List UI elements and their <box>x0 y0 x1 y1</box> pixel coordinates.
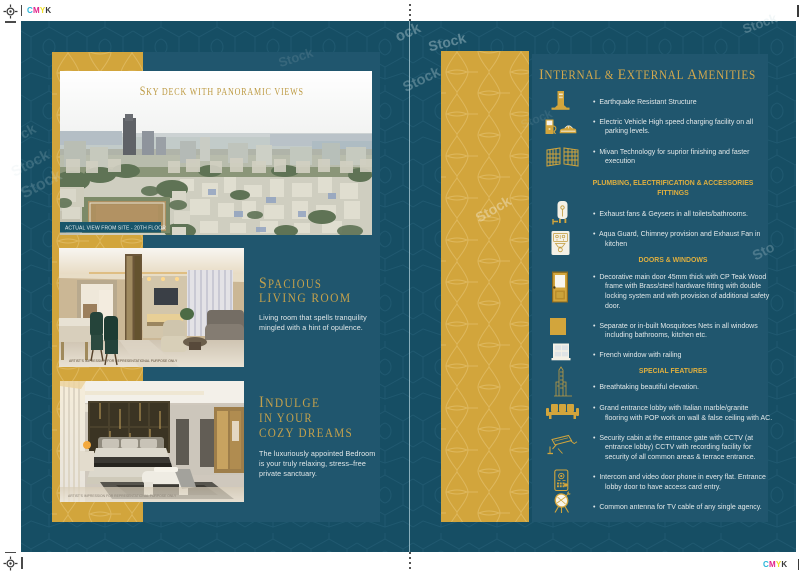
svg-text:ARTIST'S IMPRESSION FOR REPRES: ARTIST'S IMPRESSION FOR REPRESENTATIONAL… <box>68 494 177 498</box>
svg-text:ACTUAL VIEW FROM SITE - 20TH F: ACTUAL VIEW FROM SITE - 20TH FLOOR <box>65 226 166 232</box>
svg-text:ARTIST'S IMPRESSION FOR REPRES: ARTIST'S IMPRESSION FOR REPRESENTATIONAL… <box>69 359 178 363</box>
